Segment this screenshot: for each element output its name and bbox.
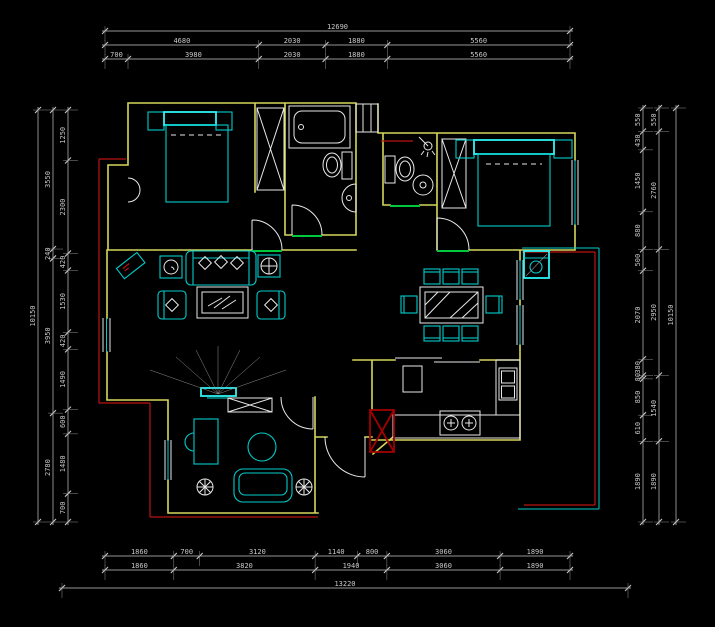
wardrobe-icon xyxy=(257,108,284,190)
dimension-label: 1530 xyxy=(59,293,67,310)
dimension-label: 3950 xyxy=(44,327,52,344)
dimension-label: 10150 xyxy=(667,304,675,325)
dimension-label: 550 xyxy=(650,113,658,126)
dimension-label: 700 xyxy=(110,51,123,59)
dimension-label: 430 xyxy=(634,134,642,147)
bathtub-icon xyxy=(289,106,350,148)
kitchen-counter xyxy=(393,360,520,438)
door-swing-icon xyxy=(292,205,322,235)
dimension-label: 1490 xyxy=(59,371,67,388)
door-swing-icon xyxy=(325,437,365,477)
washing-machine-icon xyxy=(403,366,422,392)
wardrobe-icon xyxy=(442,139,466,208)
window-icon xyxy=(165,440,171,480)
toilet-icon xyxy=(385,156,414,183)
dimension-label: 500 xyxy=(634,254,642,267)
dimension-label: 420 xyxy=(59,335,67,348)
dimension-label: 800 xyxy=(366,548,379,556)
sofa-icon xyxy=(186,251,256,285)
dimension-label: 700 xyxy=(59,502,67,515)
dimension-label: 10150 xyxy=(29,305,37,326)
dimension-label: 2950 xyxy=(650,304,658,321)
dimension-label: 850 xyxy=(634,391,642,404)
dimension-label: 2070 xyxy=(634,307,642,324)
dimension-label: 1250 xyxy=(59,127,67,144)
exterior-finish-layer xyxy=(99,141,599,517)
dimension-label: 3820 xyxy=(236,562,253,570)
coffee-table-icon xyxy=(197,287,248,318)
dimension-label: 3980 xyxy=(185,51,202,59)
dimension-label: 420 xyxy=(59,256,67,269)
dimension-label: 550 xyxy=(634,113,642,126)
plant-icon xyxy=(296,479,312,495)
armchair-icon xyxy=(158,291,186,319)
window-icon xyxy=(356,104,378,132)
dimension-label: 13220 xyxy=(334,580,355,588)
window-icon xyxy=(572,160,578,225)
dimension-label: 600 xyxy=(59,415,67,428)
dimension-label: 1450 xyxy=(634,172,642,189)
double-bed-icon xyxy=(456,140,572,226)
cabinet-icon xyxy=(228,398,272,412)
dimension-label: 2760 xyxy=(650,182,658,199)
shower-icon xyxy=(419,137,435,157)
armchair-icon xyxy=(257,291,285,319)
toilet-icon xyxy=(323,152,352,179)
loveseat-icon xyxy=(234,469,292,502)
dimension-label: 1540 xyxy=(650,400,658,417)
doors-layer xyxy=(128,178,469,477)
refrigerator-icon xyxy=(524,251,549,278)
wash-basin-icon xyxy=(413,175,433,195)
dimension-label: 1860 xyxy=(131,562,148,570)
floor-plan-drawing: 1269046802030188055607003980203018805560… xyxy=(0,0,715,627)
dimension-label: 2780 xyxy=(44,459,52,476)
dimension-label: 1480 xyxy=(59,455,67,472)
dimension-label: 1890 xyxy=(527,562,544,570)
dining-chair-icon xyxy=(401,269,502,341)
dimension-label: 1860 xyxy=(131,548,148,556)
cad-viewport[interactable]: 1269046802030188055607003980203018805560… xyxy=(0,0,715,627)
dimension-label: 2030 xyxy=(284,37,301,45)
picture-frame-icon xyxy=(116,252,144,278)
wash-basin-icon xyxy=(342,184,356,212)
double-bed-icon xyxy=(148,112,232,202)
kitchen-sink-icon xyxy=(499,368,517,400)
plant-icon xyxy=(197,479,213,495)
dimension-label: 80 xyxy=(634,373,642,381)
dimension-label: 1140 xyxy=(328,548,345,556)
dimension-label: 2030 xyxy=(284,51,301,59)
dimension-label: 1890 xyxy=(650,473,658,490)
round-table-icon xyxy=(248,433,276,461)
dimension-label: 3060 xyxy=(435,562,452,570)
dimension-label: 1940 xyxy=(343,562,360,570)
tv-view-lines xyxy=(150,346,286,394)
dimension-label: 1890 xyxy=(527,548,544,556)
dimension-label: 240 xyxy=(44,247,52,260)
dimension-label: 1880 xyxy=(348,37,365,45)
door-swing-icon xyxy=(252,220,282,250)
door-swing-icon xyxy=(281,397,313,429)
dimension-label: 880 xyxy=(634,224,642,237)
dimension-label: 3060 xyxy=(435,548,452,556)
dimension-label: 700 xyxy=(180,548,193,556)
dimension-label: 4680 xyxy=(173,37,190,45)
dimension-label: 380 xyxy=(634,361,642,374)
furniture-layer xyxy=(116,106,572,502)
window-icon xyxy=(103,318,110,352)
dimension-label: 12690 xyxy=(327,23,348,31)
dimension-label: 3550 xyxy=(44,171,52,188)
dimension-label: 1890 xyxy=(634,473,642,490)
sliding-door-icon xyxy=(395,358,480,362)
dimension-label: 5560 xyxy=(470,37,487,45)
dimension-label: 610 xyxy=(634,422,642,435)
dining-table-icon xyxy=(420,287,483,323)
door-swing-icon xyxy=(437,218,469,250)
dimension-label: 1880 xyxy=(348,51,365,59)
side-table-icon xyxy=(160,256,182,278)
side-table-icon xyxy=(258,255,280,277)
desk-icon xyxy=(185,419,218,464)
dimension-label: 3120 xyxy=(249,548,266,556)
dimension-label: 5560 xyxy=(470,51,487,59)
dimension-label: 2300 xyxy=(59,199,67,216)
